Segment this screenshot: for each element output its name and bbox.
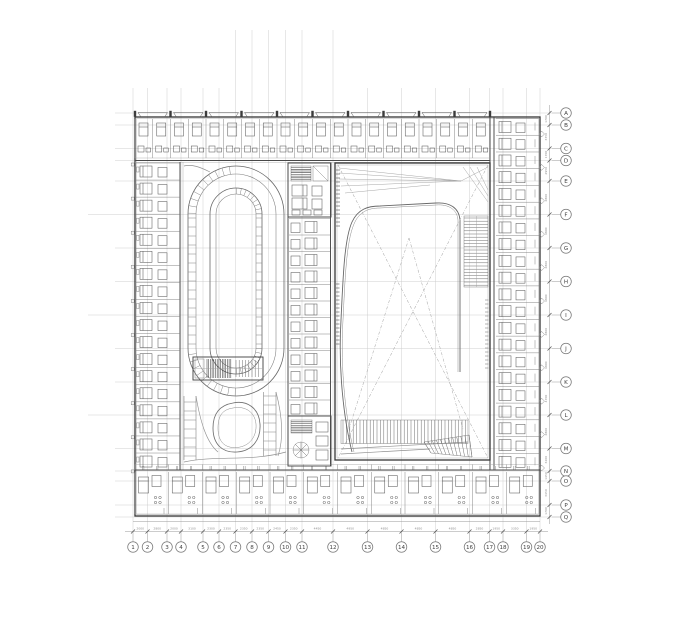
grid-bubble-label: 19 [523, 545, 531, 551]
grid-bubble-label: C [564, 147, 568, 153]
dimension-label: 2300 [207, 526, 215, 530]
grid-bubble-label: 6 [217, 545, 221, 551]
grid-bubble-label: 13 [364, 545, 372, 551]
dimension-label: 2800 [153, 526, 161, 530]
grid-bubble-label: 4 [179, 545, 183, 551]
dimension-label: 4850 [449, 526, 457, 530]
grid-bubble-label: E [564, 179, 568, 185]
grid-bubble-label: 17 [486, 545, 494, 551]
grid-bubble-label: Q [564, 515, 569, 521]
grid-bubble-label: H [564, 280, 568, 286]
dimension-label: 2350 [240, 526, 248, 530]
dimension-label: 3100 [188, 526, 196, 530]
dimension-label: 1950 [529, 526, 537, 530]
grid-bubble-label: 10 [282, 545, 290, 551]
grid-bubble-label: 7 [234, 545, 238, 551]
grid-bubble-label: 15 [432, 545, 440, 551]
grid-bubble-label: 5 [201, 545, 205, 551]
dimension-label: 2450 [273, 526, 281, 530]
dimension-label: 1700 [544, 507, 548, 515]
dimension-label: 1700 [544, 151, 548, 159]
grid-bubble-label: K [564, 380, 568, 386]
grid-bubble-label: 14 [398, 545, 406, 551]
dimension-label: 4850 [381, 526, 389, 530]
dimension-label: 2350 [290, 526, 298, 530]
dimension-label: 3350 [511, 526, 519, 530]
grid-bubble-label: 2 [146, 545, 150, 551]
grid-bubble-label: 1 [131, 545, 135, 551]
grid-bubble-label: 8 [250, 545, 254, 551]
floor-plan-drawing: 2000280020003100230023502350235024502350… [0, 0, 700, 636]
grid-bubble-label: M [564, 447, 569, 453]
grid-bubble-label: A [564, 111, 568, 117]
grid-bubble-label: 20 [536, 545, 544, 551]
dimension-label: 1450 [544, 472, 548, 480]
grid-bubble-label: 18 [499, 545, 507, 551]
dimension-label: 2000 [170, 526, 178, 530]
grid-bubble-label: B [564, 123, 568, 129]
grid-bubble-label: N [564, 469, 568, 475]
dimension-label: 1950 [492, 526, 500, 530]
grid-bubble-label: F [564, 213, 567, 219]
dimension-label: 2850 [476, 526, 484, 530]
grid-bubble-label: 3 [165, 545, 169, 551]
dimension-label: 2350 [223, 526, 231, 530]
cad-sheet: 2000280020003100230023502350235024502350… [0, 0, 700, 636]
dimension-label: 4950 [346, 526, 354, 530]
grid-bubble-label: 11 [298, 545, 306, 551]
dimension-label: 4450 [314, 526, 322, 530]
room-band-top [135, 119, 490, 158]
grid-bubble-label: O [564, 479, 569, 485]
dimension-label: 2950 [544, 167, 548, 175]
dimension-label: 2350 [256, 526, 264, 530]
grid-bubble-label: 16 [466, 545, 474, 551]
grid-bubble-label: D [564, 159, 568, 165]
grid-bubble-label: G [564, 246, 568, 252]
dimension-label: 1700 [544, 115, 548, 123]
dimension-label: 2000 [136, 526, 144, 530]
dimension-label: 4850 [415, 526, 423, 530]
grid-bubble-label: 12 [329, 545, 336, 551]
grid-bubble-label: J [564, 347, 567, 353]
dimension-label: 3450 [544, 489, 548, 497]
grid-bubble-label: 9 [267, 545, 271, 551]
dimension-label: 3200 [544, 456, 548, 464]
